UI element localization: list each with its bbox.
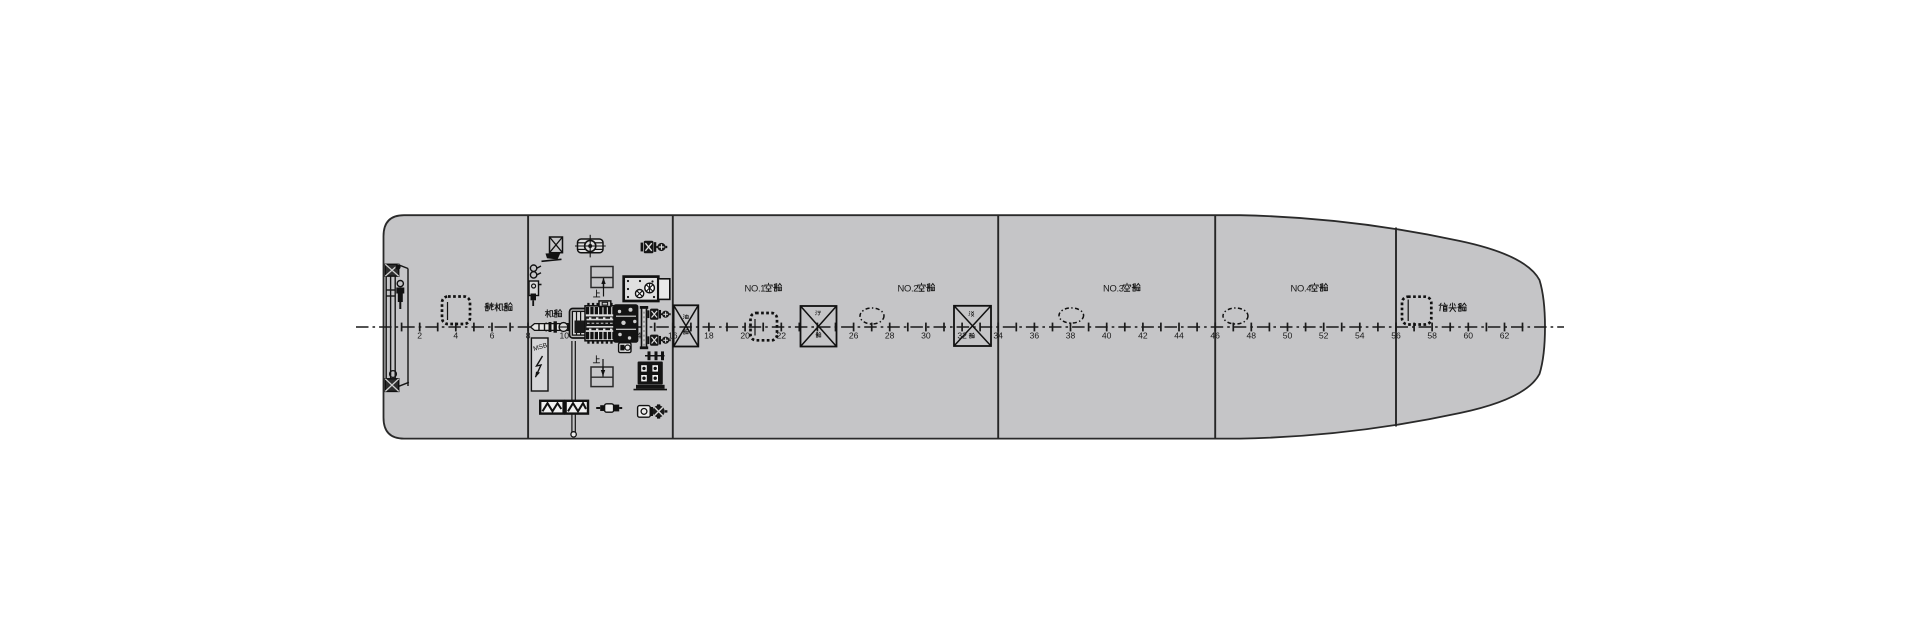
svg-text:34: 34 <box>993 331 1003 341</box>
svg-text:52: 52 <box>1319 331 1329 341</box>
svg-text:58: 58 <box>1427 331 1437 341</box>
svg-text:36: 36 <box>1030 331 1040 341</box>
svg-text:50: 50 <box>1283 331 1293 341</box>
svg-text:40: 40 <box>1102 331 1112 341</box>
svg-text:NO.4: NO.4 <box>1291 282 1312 293</box>
svg-text:54: 54 <box>1355 331 1365 341</box>
svg-text:26: 26 <box>849 331 859 341</box>
svg-text:48: 48 <box>1247 331 1257 341</box>
svg-text:30: 30 <box>921 331 931 341</box>
svg-text:38: 38 <box>1066 331 1076 341</box>
svg-text:NO.1: NO.1 <box>745 282 766 293</box>
svg-text:42: 42 <box>1138 331 1148 341</box>
svg-text:4: 4 <box>453 331 458 341</box>
svg-text:NO.2: NO.2 <box>898 282 919 293</box>
svg-text:46: 46 <box>1210 331 1220 341</box>
svg-text:44: 44 <box>1174 331 1184 341</box>
svg-text:8: 8 <box>526 331 531 341</box>
svg-text:60: 60 <box>1464 331 1474 341</box>
svg-text:10: 10 <box>560 331 570 341</box>
svg-text:18: 18 <box>704 331 714 341</box>
svg-text:6: 6 <box>490 331 495 341</box>
svg-text:32: 32 <box>957 331 967 341</box>
svg-text:2: 2 <box>417 331 422 341</box>
svg-text:NO.3: NO.3 <box>1103 282 1124 293</box>
svg-text:28: 28 <box>885 331 895 341</box>
svg-text:62: 62 <box>1500 331 1510 341</box>
svg-text:56: 56 <box>1391 331 1401 341</box>
svg-text:20: 20 <box>740 331 750 341</box>
